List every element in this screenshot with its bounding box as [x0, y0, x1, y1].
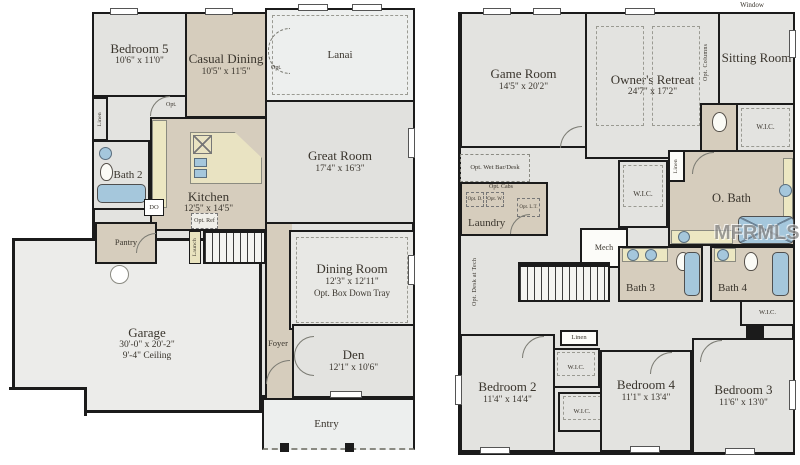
window-marker — [625, 8, 655, 15]
tray-ceiling-outline — [652, 26, 700, 126]
window-marker — [205, 8, 233, 15]
closet-linen: Linen — [92, 97, 108, 141]
window-marker — [352, 4, 382, 11]
window-marker — [789, 380, 796, 410]
bathtub-fixture — [684, 252, 700, 296]
opt-ref-label: Opt. Ref — [194, 218, 215, 225]
bedroom4-label: Bedroom 4 — [617, 378, 675, 393]
casual-dining-dims: 10'5" x 11'5" — [202, 67, 251, 78]
window-marker — [408, 255, 415, 285]
window-marker — [330, 391, 362, 398]
pantry-label: Pantry — [115, 238, 137, 248]
wic-carpet-outline — [557, 352, 595, 376]
stairs-second-floor — [518, 262, 610, 302]
opt-dryer-box: Opt. D. — [466, 192, 484, 207]
floorplan-image: Lanai Opt. Bedroom 5 10'6" x 11'0" Casua… — [0, 0, 800, 465]
dining-tray-outline — [296, 237, 408, 323]
room-game-room: Game Room 14'5" x 20'2" — [460, 12, 587, 148]
bedroom5-dims: 10'6" x 11'0" — [115, 56, 164, 67]
toilet-fixture — [712, 112, 727, 132]
double-oven-box: DO — [144, 199, 164, 216]
mls-watermark: MFRMLS — [714, 222, 800, 245]
water-heater — [110, 265, 129, 284]
obath-label: O. Bath — [712, 191, 751, 205]
garage-ceiling: 9'-4" Ceiling — [123, 351, 172, 362]
garage-dims: 30'-0" x 20'-2" — [119, 340, 175, 351]
sink-fixture — [717, 249, 729, 261]
great-room-dims: 17'4" x 16'3" — [315, 164, 364, 175]
toilet-fixture — [100, 163, 113, 181]
kitchen-sink-fixture — [194, 169, 207, 178]
window-marker — [789, 30, 796, 58]
opt-wet-bar: Opt. Wet Bar/Desk — [460, 154, 530, 182]
wic-bath4-label: W.I.C. — [759, 309, 776, 316]
bathtub-fixture — [772, 252, 789, 296]
bath4-label: Bath 4 — [718, 282, 747, 294]
window-marker — [298, 4, 328, 11]
mech-label: Mech — [595, 244, 613, 253]
bedroom4-dims: 11'1" x 13'4" — [622, 393, 671, 404]
wic-carpet-outline — [563, 396, 601, 420]
opt-wet-bar-label: Opt. Wet Bar/Desk — [470, 164, 519, 171]
window-marker — [630, 446, 660, 453]
wic-carpet-outline — [741, 108, 790, 147]
double-oven-label: DO — [149, 204, 158, 211]
opt-cabs-label: Opt. Cabs — [478, 184, 524, 191]
opt-washer-box: Opt. W. — [486, 192, 504, 207]
entry-label: Entry — [314, 418, 338, 430]
launch-label: Launch — [192, 238, 198, 256]
bedroom5-label: Bedroom 5 — [110, 42, 168, 57]
opt-columns-label: Opt. Columns — [703, 28, 709, 96]
window-marker — [408, 128, 415, 158]
launch-zone: Launch — [189, 231, 201, 264]
game-room-dims: 14'5" x 20'2" — [499, 82, 548, 93]
tray-ceiling-outline — [596, 26, 644, 126]
bathtub-fixture — [97, 184, 146, 203]
closet-linen-lower: Linen — [560, 330, 598, 346]
opt-lt-label: Opt. L.T. — [519, 205, 537, 211]
kitchen-label: Kitchen — [188, 190, 229, 205]
lanai-opt-label: Opt. — [271, 65, 291, 72]
wic-carpet-outline — [623, 165, 663, 207]
stairs-first-floor — [203, 231, 266, 264]
window-marker — [110, 8, 138, 15]
bath3-label: Bath 3 — [626, 282, 655, 294]
garage-label: Garage — [128, 326, 166, 341]
casual-dining-label: Casual Dining — [189, 52, 264, 67]
den-label: Den — [343, 348, 365, 363]
kitchen-sink-fixture — [194, 158, 207, 167]
room-sitting: Sitting Room — [718, 12, 795, 105]
room-bedroom-4: Bedroom 4 11'1" x 13'4" — [600, 350, 692, 452]
laundry-label: Laundry — [468, 217, 505, 229]
game-room-label: Game Room — [490, 67, 556, 82]
linen-upper-label: Linen — [673, 159, 679, 173]
window-marker — [533, 8, 561, 15]
closet-wic-bath4: W.I.C. — [740, 300, 795, 326]
sink-fixture — [99, 147, 112, 160]
den-dims: 12'1" x 10'6" — [329, 363, 378, 374]
sink-fixture — [779, 184, 792, 197]
great-room-label: Great Room — [308, 149, 372, 164]
opt-ref-box: Opt. Ref — [191, 213, 218, 229]
closet-linen-upper: Linen — [668, 150, 685, 182]
room-great-room: Great Room 17'4" x 16'3" — [265, 100, 415, 224]
opt-washer-label: Opt. W. — [487, 197, 502, 203]
window-marker — [480, 447, 510, 454]
toilet-fixture — [744, 252, 758, 271]
window-marker — [455, 375, 462, 405]
bedroom2-label: Bedroom 2 — [478, 380, 536, 395]
bedroom3-dims: 11'6" x 13'0" — [719, 398, 768, 409]
sitting-room-label: Sitting Room — [722, 51, 792, 66]
opt-cooktop-marker — [193, 135, 212, 154]
sink-fixture — [678, 231, 690, 243]
linen-lower-label: Linen — [571, 334, 586, 341]
room-bedroom-5: Bedroom 5 10'6" x 11'0" — [92, 12, 187, 97]
sink-fixture — [627, 249, 639, 261]
garage-step-notch — [9, 387, 87, 416]
window-note-label: Window — [720, 1, 784, 9]
porch-post — [345, 443, 354, 452]
window-marker — [725, 448, 755, 455]
opt-desk-tech-label: Opt. Desk at Tech — [472, 244, 478, 319]
window-marker — [483, 8, 511, 15]
bedroom2-dims: 11'4" x 14'4" — [483, 395, 532, 406]
sink-fixture — [645, 249, 657, 261]
room-casual-dining: Casual Dining 10'5" x 11'5" — [185, 12, 267, 118]
opt-dryer-label: Opt. D. — [468, 197, 483, 203]
linen-label: Linen — [97, 112, 103, 126]
kitchen-counter — [152, 120, 167, 208]
bedroom3-label: Bedroom 3 — [714, 383, 772, 398]
porch-post — [280, 443, 289, 452]
lanai-optional-outline — [272, 15, 408, 95]
